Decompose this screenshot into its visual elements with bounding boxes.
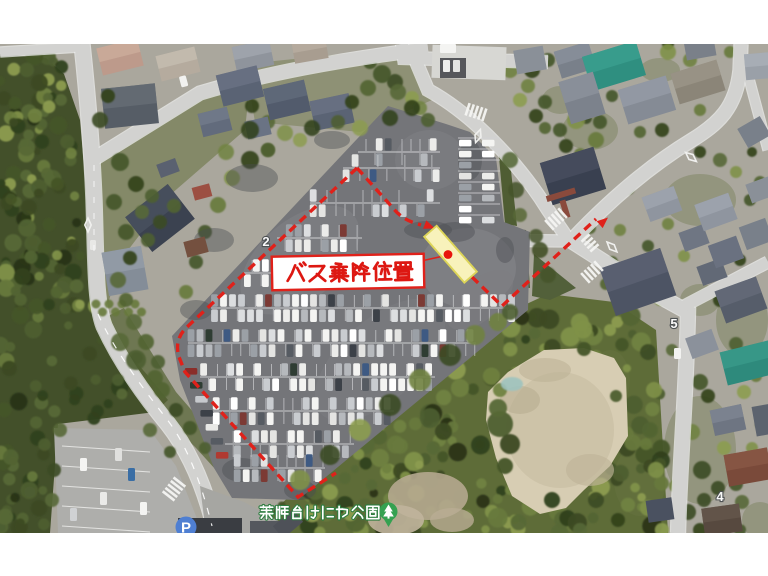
svg-text:2: 2 <box>262 234 269 249</box>
svg-text:5: 5 <box>670 316 677 331</box>
svg-text:4: 4 <box>716 489 724 504</box>
